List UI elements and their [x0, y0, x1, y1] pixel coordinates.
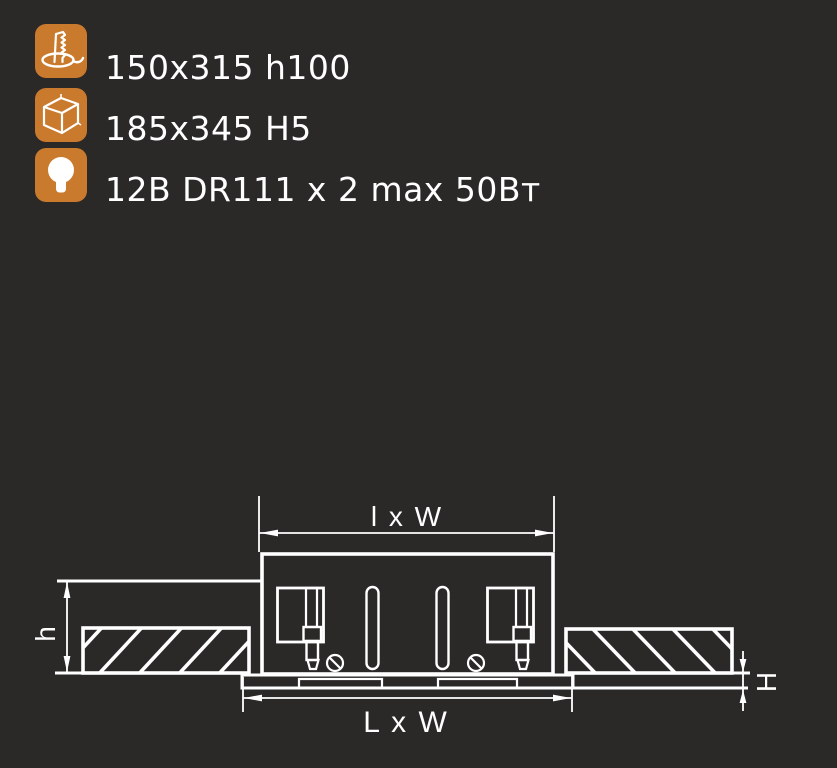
arrow-right: [535, 530, 553, 537]
dim-label-right: H: [751, 670, 782, 692]
ceiling-left: [55, 581, 267, 678]
spring-slot-right: [437, 587, 449, 669]
dimension-left-h: h: [30, 581, 70, 673]
dim-label-top: l x W: [371, 501, 443, 532]
dimension-diagram: l x W: [0, 0, 837, 768]
ceiling-right: [548, 624, 760, 678]
dim-label-left: h: [30, 624, 61, 642]
lamp-module-right: [468, 588, 534, 671]
dimension-right-H: H: [740, 651, 782, 711]
arrow-right: [553, 695, 571, 702]
spring-slot-left: [367, 587, 379, 669]
product-spec-panel: 150x315 h100 185x345 H5 12В DR111 x 2 ma…: [0, 0, 837, 768]
dim-label-bottom: L x W: [363, 706, 449, 739]
lamp-module-left: [278, 588, 344, 671]
trim-flange: [242, 675, 748, 688]
arrow-left: [260, 530, 278, 537]
arrow-left: [244, 695, 262, 702]
